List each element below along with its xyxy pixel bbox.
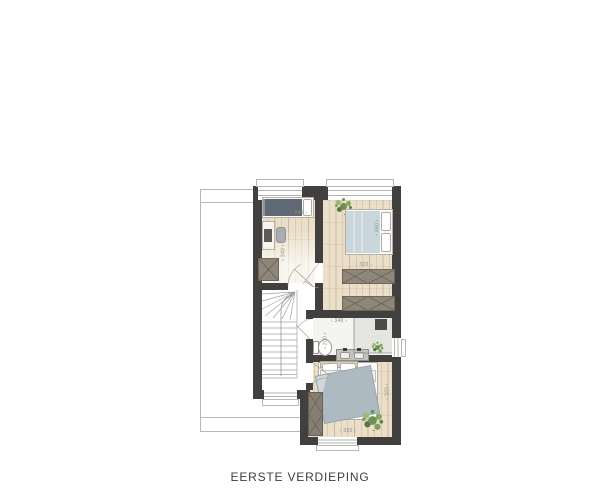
bed-crease-lines [354,212,362,252]
dimension-bedroom-master-depth: ‹ 320 › [385,379,392,405]
dimension-bedroom-left-width: ‹ 240 › [286,210,312,217]
dimension-bathroom-depth: ‹ 200 › [323,328,330,354]
floorplan-canvas: ‹ 240 › ‹ 340 › ‹ 460 › ‹ 320 › ‹ 340 › … [0,0,600,500]
dimension-bedroom-left-depth: ‹ 340 › [281,240,288,266]
dimension-bathroom-width: ‹ 340 › [326,318,352,325]
shower-glass [354,318,392,353]
page-title: EERSTE VERDIEPING [0,470,600,484]
plan-linework [0,0,600,500]
stairs [262,290,297,378]
dimension-bedroom-right-width: ‹ 320 › [351,262,377,269]
dimension-bedroom-right-depth: ‹ 460 › [375,215,382,241]
dimension-bedroom-master-width: ‹ 350 › [335,428,361,435]
door-swings [288,263,330,383]
